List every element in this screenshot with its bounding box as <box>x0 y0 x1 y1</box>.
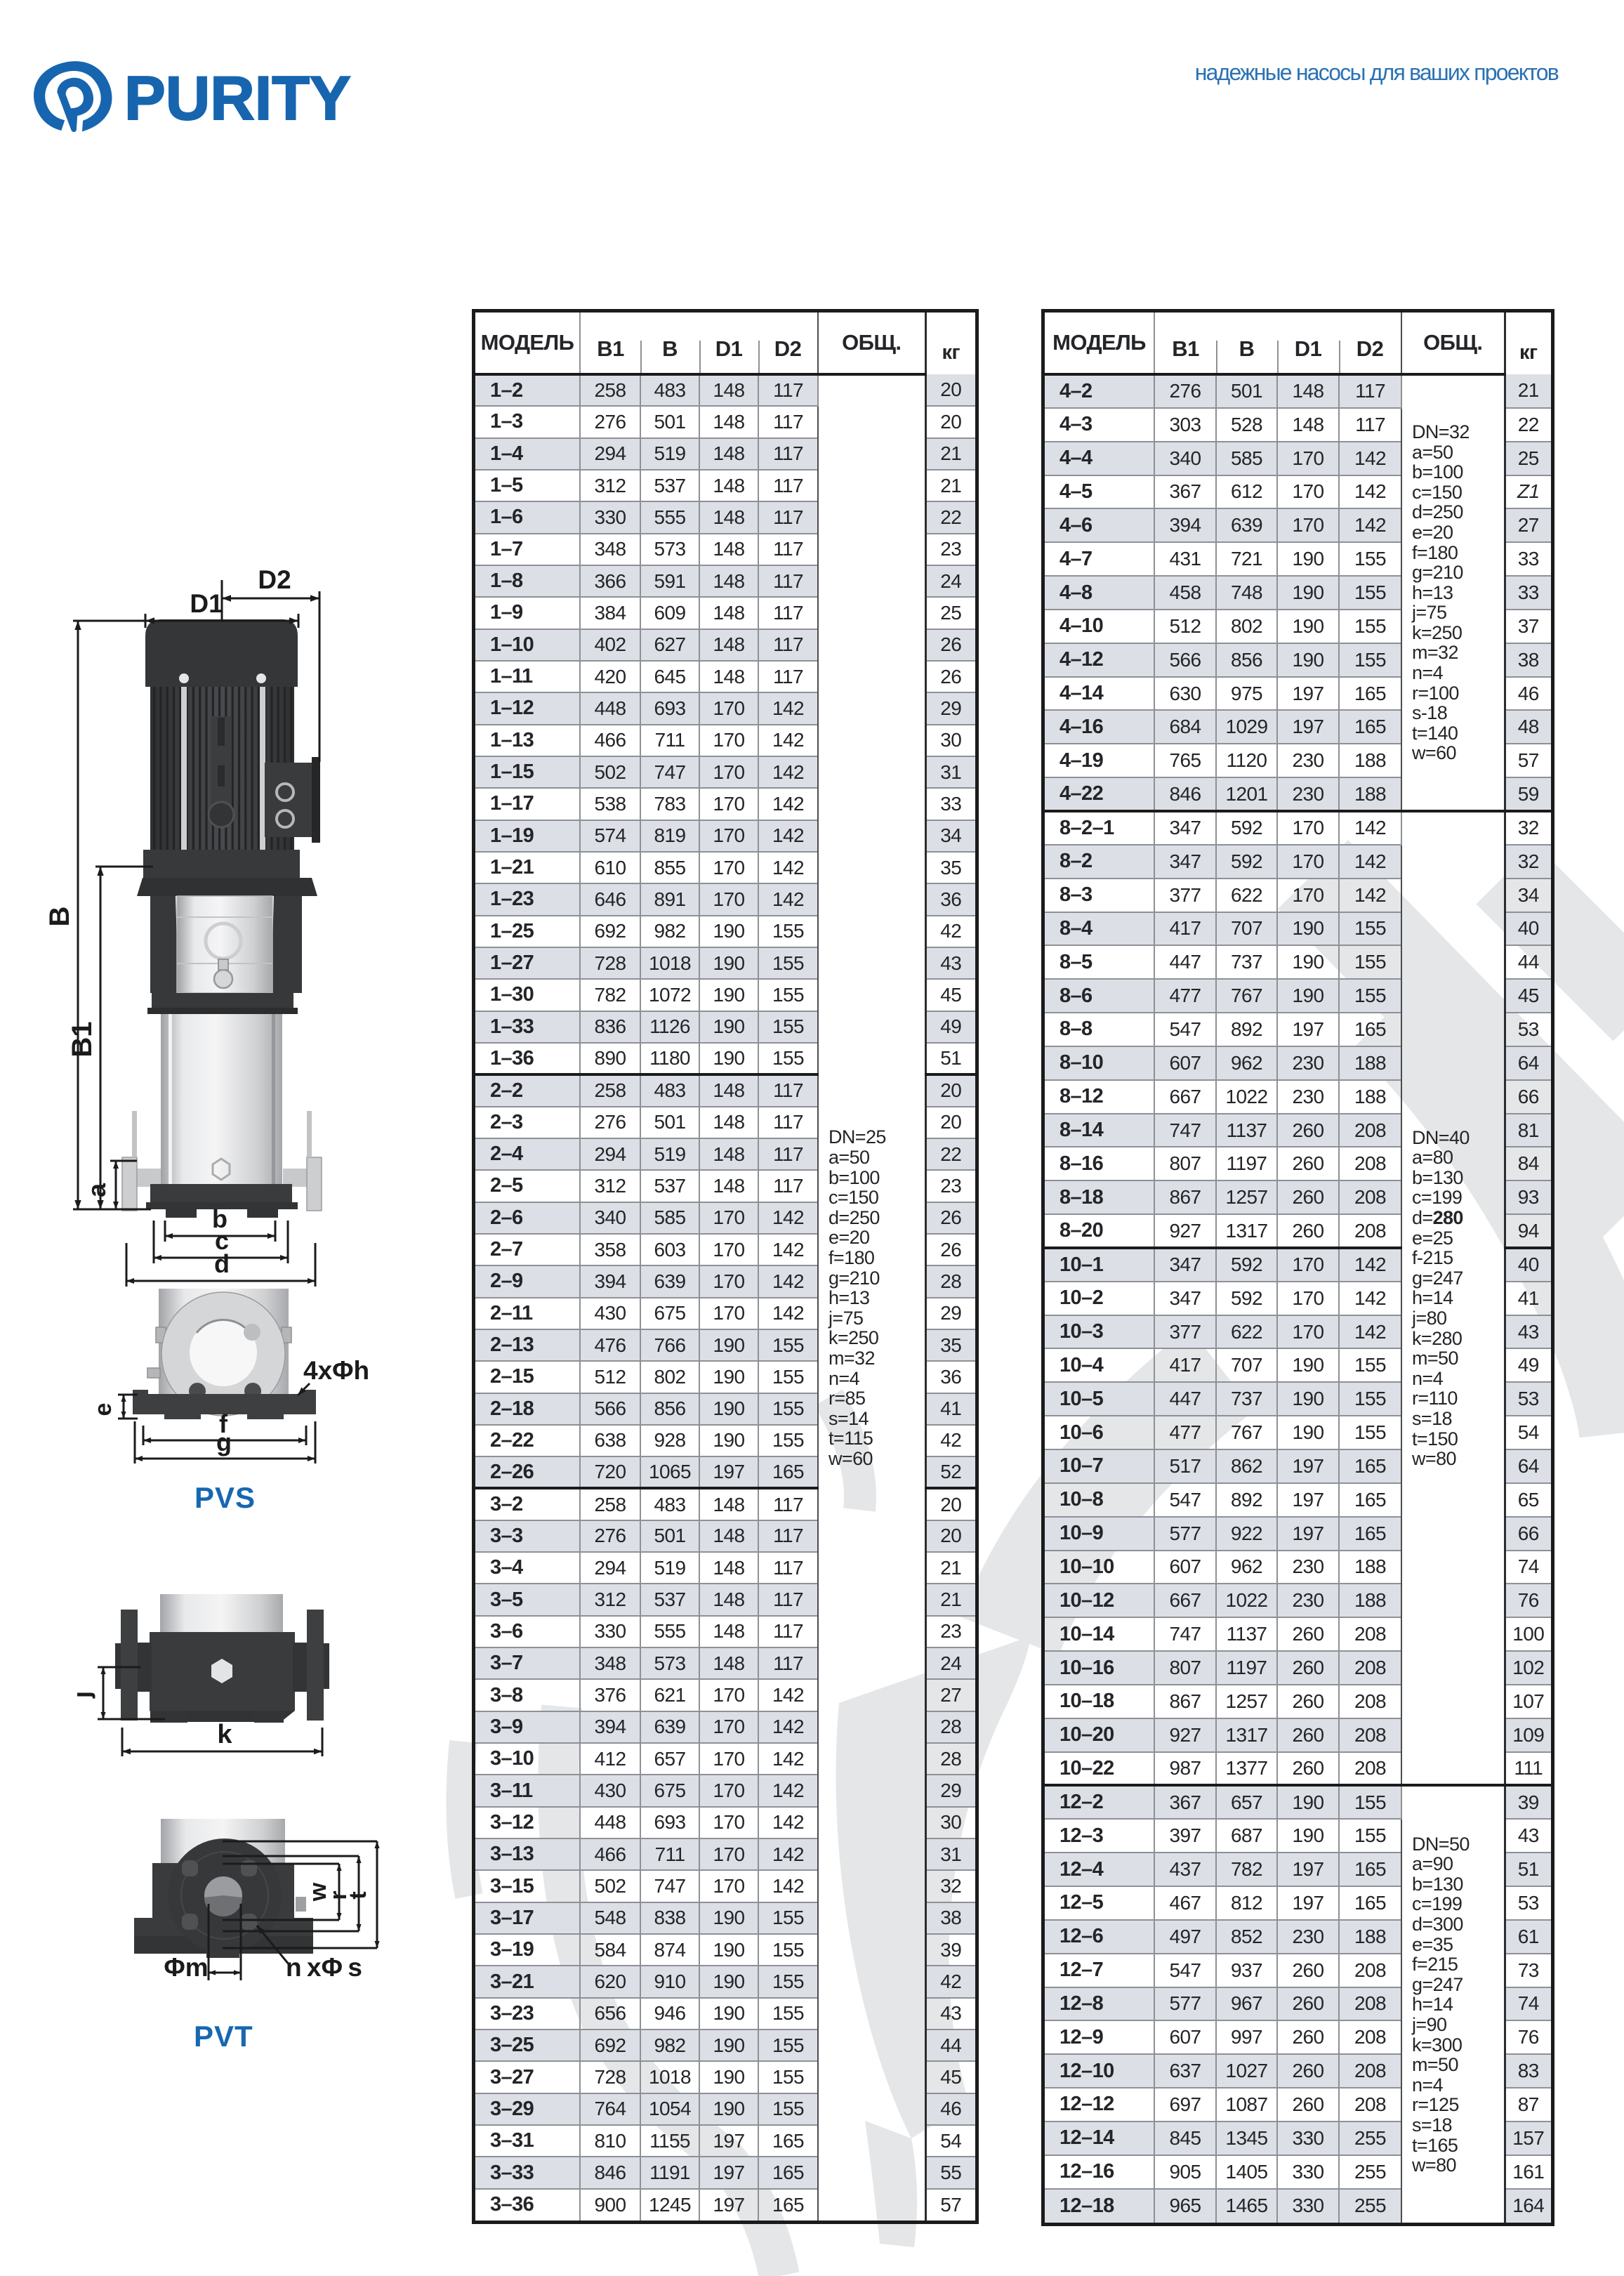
svg-text:g: g <box>216 1428 232 1456</box>
svg-text:B: B <box>44 907 75 927</box>
svg-text:D1: D1 <box>190 589 223 618</box>
svg-text:PURITY: PURITY <box>124 63 351 133</box>
svg-text:t: t <box>345 1891 371 1899</box>
svg-text:B1: B1 <box>67 1021 98 1057</box>
svg-text:d: d <box>214 1249 230 1278</box>
svg-text:a: a <box>82 1183 111 1197</box>
svg-text:k: k <box>217 1720 232 1749</box>
svg-text:e: e <box>90 1403 117 1416</box>
svg-text:D2: D2 <box>258 565 291 594</box>
svg-text:Φm: Φm <box>164 1953 208 1982</box>
svg-text:4xΦh: 4xΦh <box>303 1356 369 1385</box>
svg-text:n xΦ s: n xΦ s <box>286 1953 362 1982</box>
svg-text:j: j <box>77 1691 95 1699</box>
